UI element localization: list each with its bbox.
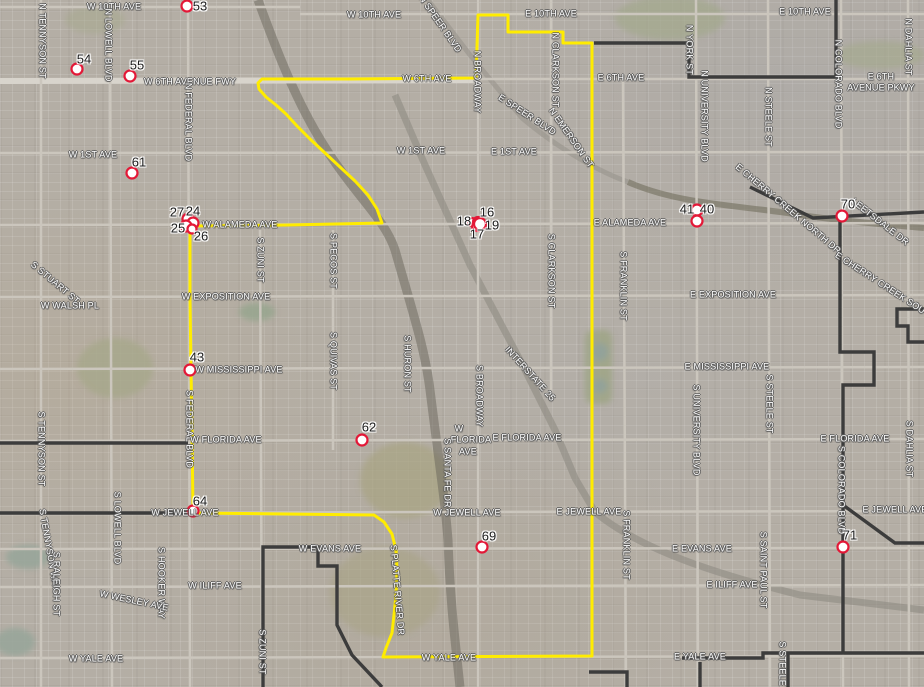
map-marker-69[interactable] (477, 542, 488, 553)
map-marker-70[interactable] (837, 211, 848, 222)
route-path[interactable] (190, 15, 592, 657)
boundary-line (682, 653, 924, 658)
map-marker-62[interactable] (357, 435, 368, 446)
boundary-line (589, 672, 627, 687)
map-marker-61[interactable] (127, 168, 138, 179)
map-marker-55[interactable] (125, 71, 136, 82)
map-canvas[interactable]: W 10TH AVEW 10TH AVEE 10TH AVEE 10TH AVE… (0, 0, 924, 687)
map-marker-26[interactable] (188, 225, 197, 234)
map-marker-53[interactable] (182, 1, 193, 12)
map-marker-54[interactable] (72, 64, 83, 75)
map-marker-71[interactable] (838, 542, 849, 553)
boundary-line (263, 547, 382, 687)
boundary-line (843, 505, 924, 543)
boundary-line (897, 309, 924, 342)
boundary-line (594, 0, 836, 77)
map-overlay-layer (0, 0, 924, 687)
map-marker-41[interactable] (692, 205, 703, 216)
map-marker-40[interactable] (692, 216, 703, 227)
map-marker-64[interactable] (188, 506, 199, 517)
map-marker-43[interactable] (185, 365, 196, 376)
map-marker-19[interactable] (474, 218, 486, 230)
boundary-line (840, 218, 874, 653)
